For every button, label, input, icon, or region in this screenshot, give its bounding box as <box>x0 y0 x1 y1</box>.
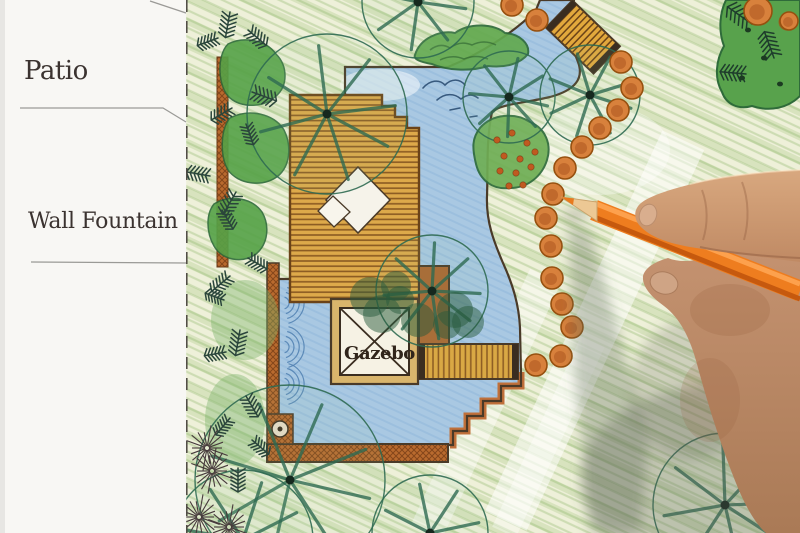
wall-fountain-label: Wall Fountain <box>28 209 178 234</box>
berry-dot <box>509 130 515 136</box>
stepping-stone-texture <box>546 189 558 201</box>
berry-dot <box>524 140 530 146</box>
gazebo-label: Gazebo <box>344 343 415 364</box>
stepping-stone-texture <box>530 15 542 27</box>
stepping-stone-texture <box>529 360 541 372</box>
stepping-stone-texture <box>593 123 605 135</box>
stepping-stone-texture <box>544 241 556 253</box>
stepping-stone-texture <box>539 213 551 225</box>
berry-dot <box>494 137 500 143</box>
stepping-stone-texture <box>554 351 566 363</box>
tree-symbol <box>247 34 407 194</box>
landscape-plan-drawing <box>0 0 800 533</box>
stepping-stone-texture <box>505 0 517 12</box>
stepping-stone-texture <box>749 4 764 19</box>
berry-dot <box>517 156 523 162</box>
berry-dot <box>528 164 534 170</box>
stepping-stone-texture <box>558 163 570 175</box>
photo-of-landscape-plan: Patio Wall Fountain Gazebo <box>0 0 800 533</box>
berry-dot <box>532 149 538 155</box>
stepping-stone-texture <box>575 142 587 154</box>
stepping-stone-texture <box>614 57 626 69</box>
berry-dot <box>513 170 519 176</box>
stepping-stone-texture <box>555 299 567 311</box>
stepping-stone-texture <box>611 105 623 117</box>
stepping-stone-texture <box>783 17 793 27</box>
boardwalk <box>419 344 518 379</box>
patio-label: Patio <box>24 56 88 86</box>
leafy-canopy <box>401 303 435 337</box>
berry-dot <box>506 183 512 189</box>
stepping-stone-texture <box>625 83 637 95</box>
berry-dot <box>497 168 503 174</box>
berry-dot <box>501 153 507 159</box>
leafy-canopy <box>350 277 390 317</box>
stepping-stone-texture <box>545 273 557 285</box>
berry-dot <box>520 182 526 188</box>
leafy-canopy <box>433 311 461 339</box>
